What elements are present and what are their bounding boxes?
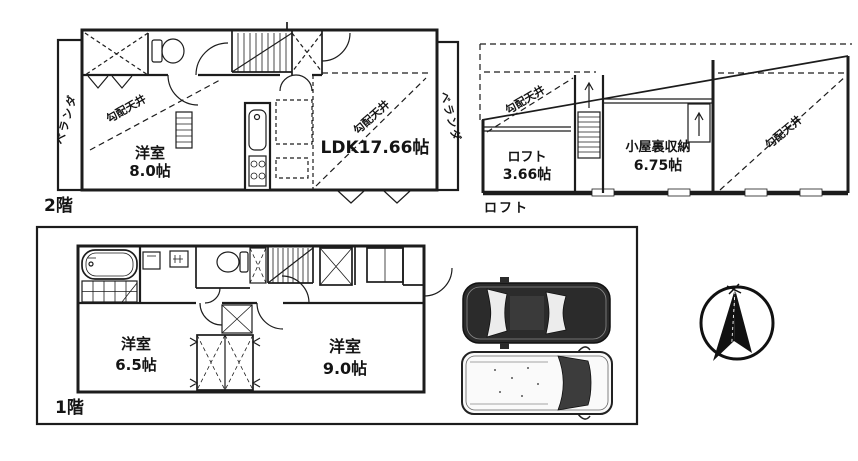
sloped-ceiling-label-loft-right: 勾配天井 xyxy=(762,112,805,151)
room-size-yoshitsu-65: 6.5帖 xyxy=(115,356,157,374)
attic-ceiling-edge xyxy=(603,99,713,103)
floor2-plan: 勾配天井 洋室 8.0帖 勾配天井 LDK17.66帖 ベランダ ベランダ 2階 xyxy=(44,22,464,216)
floorplan-sheet: 勾配天井 洋室 8.0帖 勾配天井 LDK17.66帖 ベランダ ベランダ 2階 xyxy=(0,0,858,461)
floor1-label: 1階 xyxy=(55,398,84,418)
room-size-loft: 3.66帖 xyxy=(503,166,552,183)
loft-ceiling-edge xyxy=(483,127,571,131)
room-size-attic: 6.75帖 xyxy=(634,157,683,174)
north-compass-icon xyxy=(701,284,773,361)
window-mark-icon xyxy=(338,191,410,203)
room-label-attic: 小屋裏収納 xyxy=(625,139,690,155)
sloped-ceiling-line xyxy=(487,78,573,132)
room-label-yoshitsu-9: 洋室 xyxy=(329,337,361,356)
floorplan-drawing: 勾配天井 洋室 8.0帖 勾配天井 LDK17.66帖 ベランダ ベランダ 2階 xyxy=(0,0,858,461)
hatch-access-icon xyxy=(688,104,710,142)
floor2-label: 2階 xyxy=(44,196,73,216)
room-label-loft: ロフト xyxy=(507,150,546,165)
room-label-yoshitsu-8: 洋室 xyxy=(135,144,165,162)
room-size-yoshitsu-8: 8.0帖 xyxy=(129,162,171,180)
stairs-icon xyxy=(578,83,600,158)
room-label-yoshitsu-65: 洋室 xyxy=(121,335,151,353)
loft-section-label: ロフト xyxy=(484,201,529,216)
room-size-yoshitsu-9: 9.0帖 xyxy=(323,359,367,378)
car-van-icon xyxy=(462,347,612,419)
loft-plan: 勾配天井 ロフト 3.66帖 小屋裏収納 6.75帖 勾配天井 ロフト xyxy=(480,44,852,216)
room-label-ldk: LDK17.66帖 xyxy=(321,137,430,158)
car-sedan-icon xyxy=(463,277,610,349)
roof-outline-dashed xyxy=(480,44,852,120)
kitchen-icon xyxy=(245,103,270,190)
